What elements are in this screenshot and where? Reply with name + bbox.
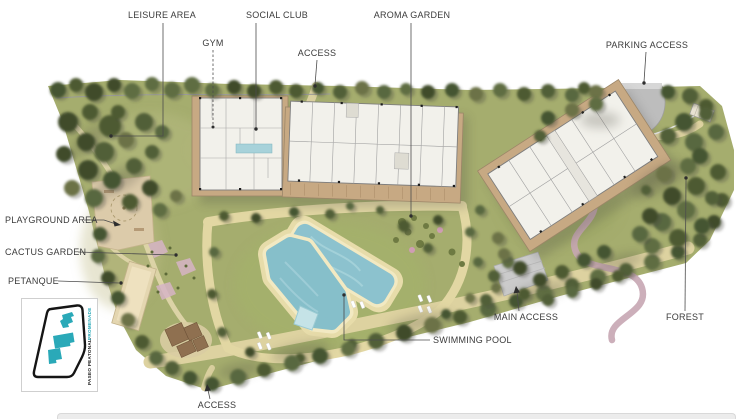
label-access-bottom: ACCESS	[198, 401, 237, 410]
label-access-top: ACCESS	[298, 49, 337, 58]
label-playground-area: PLAYGROUND AREA	[5, 216, 98, 225]
leader-parking-access	[642, 52, 646, 85]
label-social-club: SOCIAL CLUB	[246, 11, 308, 20]
bottom-panel-edge	[57, 413, 736, 419]
key-plan-legend: PASEO PEATONAL. PROMENADE	[21, 298, 98, 392]
label-main-access: MAIN ACCESS	[494, 313, 558, 322]
building-social-club	[192, 96, 288, 196]
label-swimming-pool: SWIMMING POOL	[433, 336, 512, 345]
label-gym: GYM	[202, 39, 223, 48]
site-plan-illustration	[0, 0, 736, 419]
label-forest: FOREST	[666, 313, 704, 322]
key-plan-drawing: PASEO PEATONAL. PROMENADE	[22, 299, 97, 391]
label-parking-access: PARKING ACCESS	[606, 41, 688, 50]
label-petanque: PETANQUE	[8, 277, 59, 286]
site-plan-page: LEISURE AREA SOCIAL CLUB GYM ACCESS AROM…	[0, 0, 736, 419]
legend-promenade: PROMENADE	[87, 307, 92, 340]
building-center	[282, 100, 463, 203]
label-aroma-garden: AROMA GARDEN	[374, 11, 451, 20]
indoor-lap-pool	[236, 144, 272, 153]
label-leisure-area: LEISURE AREA	[128, 11, 196, 20]
legend-paseo-peatonal: PASEO PEATONAL.	[87, 337, 92, 385]
label-cactus-garden: CACTUS GARDEN	[5, 248, 86, 257]
